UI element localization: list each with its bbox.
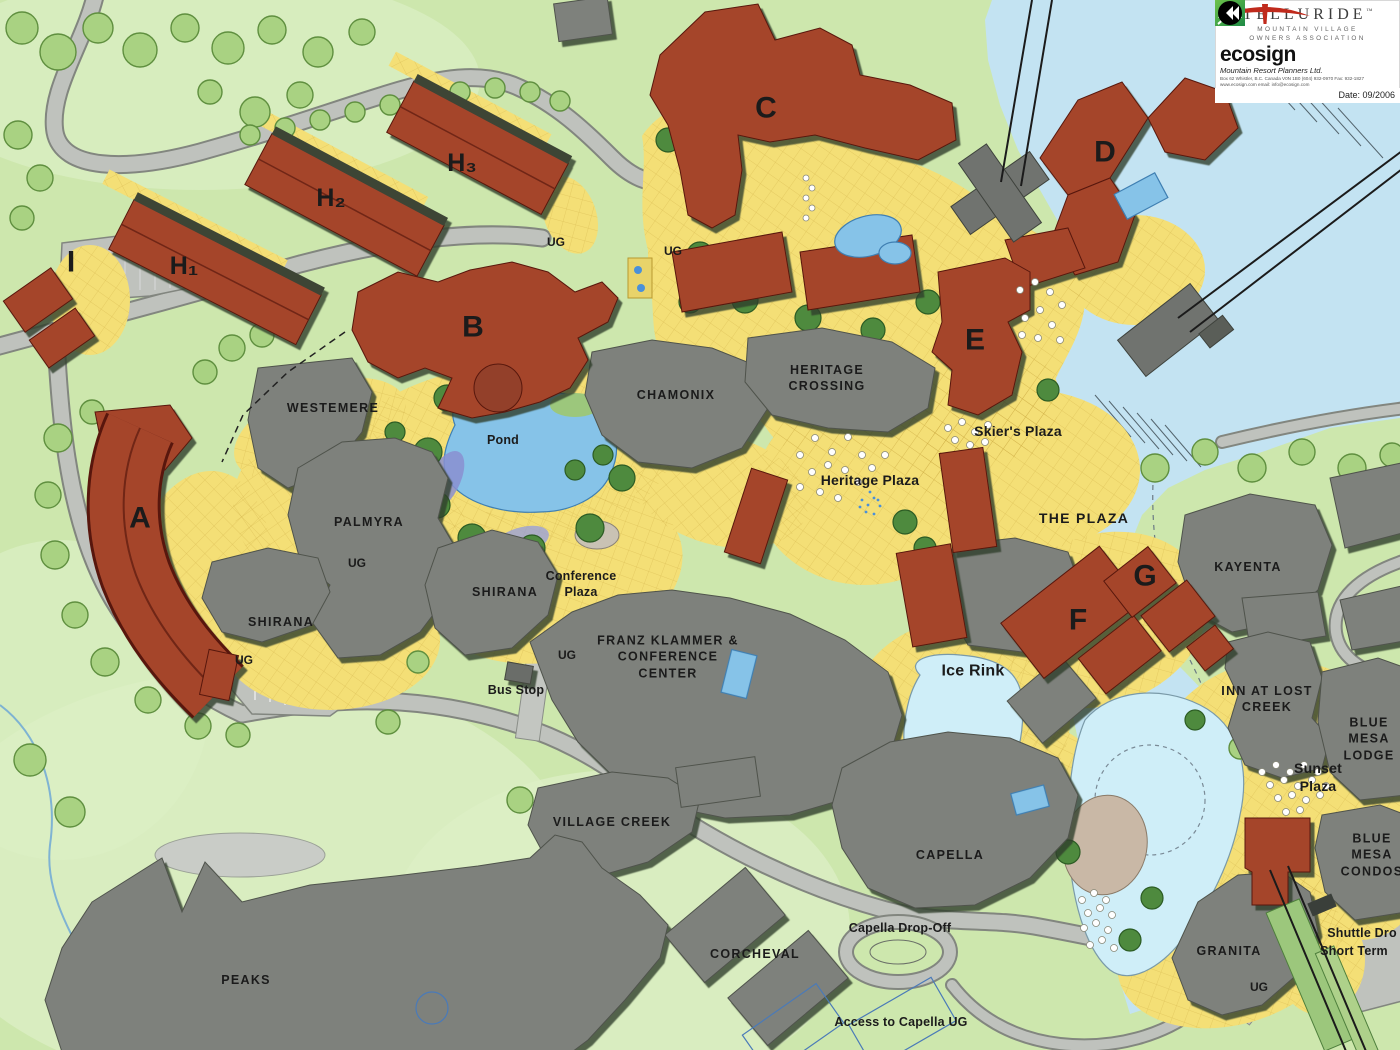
bus-shelter (505, 662, 534, 684)
ecosign-mark-icon (1217, 0, 1243, 26)
planner-address-2: www.ecosign.com email: info@ecosign.com (1220, 82, 1396, 87)
plan-date: Date: 09/2006 (1215, 88, 1400, 103)
resort-map-page: IH₁H₂H₃CDBEAFGWESTEMERECHAMONIXHERITAGE … (0, 0, 1400, 1050)
planner-name: ecosign (1220, 45, 1396, 65)
building-inn-lost-creek (1225, 632, 1330, 778)
org-subtitle-1: MOUNTAIN VILLAGE (1221, 26, 1394, 33)
planner-address-1: Box 62 Whistler, B.C. Canada V0N 1B0 (60… (1220, 76, 1396, 81)
spa-structure (628, 258, 652, 298)
map-canvas (0, 0, 1400, 1050)
ecosign-logo-block: ecosign Mountain Resort Planners Ltd. Bo… (1215, 42, 1400, 88)
pool-c-2 (879, 242, 911, 264)
building-top-edge (554, 0, 613, 42)
legend-panel: TELLURIDE™ MOUNTAIN VILLAGE OWNERS ASSOC… (1215, 0, 1400, 103)
peaks-parking (155, 833, 325, 877)
building-capella (832, 732, 1078, 908)
org-subtitle-2: OWNERS ASSOCIATION (1221, 35, 1394, 42)
planner-subtitle: Mountain Resort Planners Ltd. (1220, 66, 1396, 75)
